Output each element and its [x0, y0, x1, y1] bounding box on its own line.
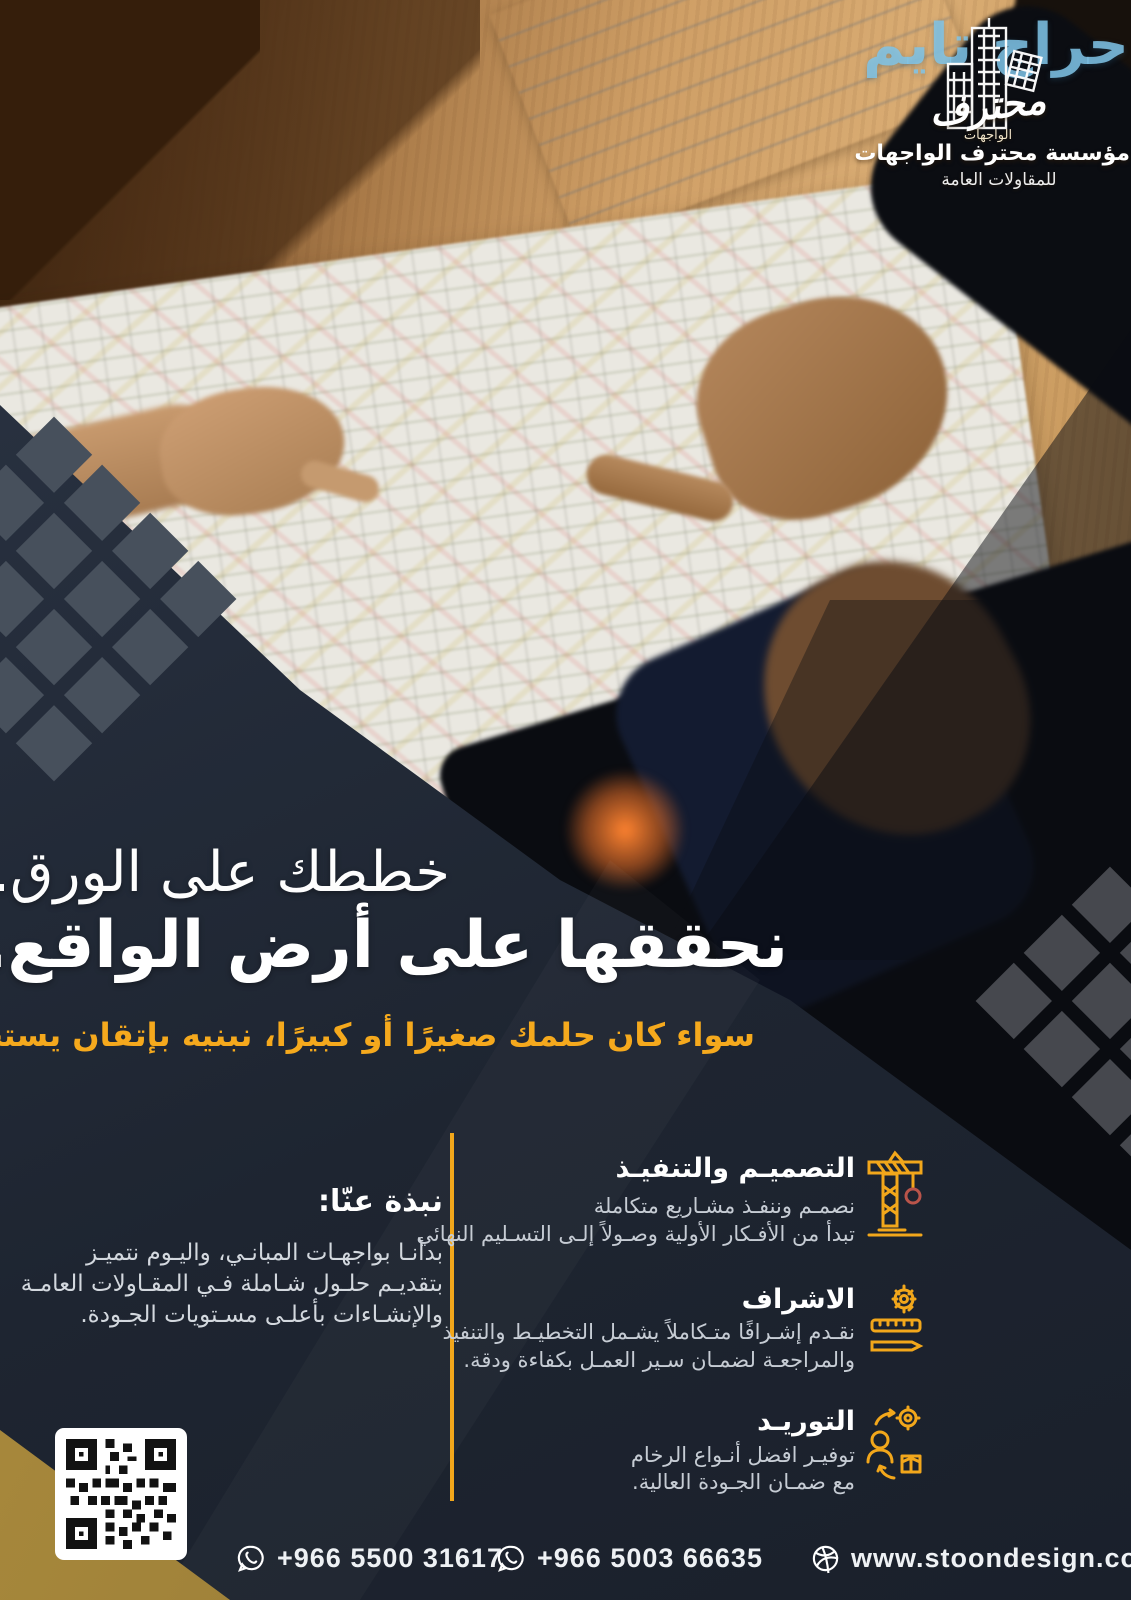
about-text: بدأنـا بواجهـات المبانـي، واليـوم نتميـز [86, 1240, 443, 1266]
service-desc: توفيـر افضل أنـواع الرخام [631, 1443, 855, 1467]
service-desc: مع ضمـان الجـودة العالية. [632, 1470, 855, 1494]
whatsapp-icon [236, 1543, 267, 1574]
service-desc: والمراجعـة لضمـان سـير العمـل بكفاءة ودق… [463, 1348, 855, 1372]
headline-subtitle: سواء كان حلمك صغيرًا أو كبيرًا، نبنيه بإ… [0, 1016, 755, 1054]
phone-item-1[interactable]: +966 5500 31617 [236, 1543, 503, 1574]
phone-number: +966 5003 66635 [537, 1543, 763, 1574]
phone-item-2[interactable]: +966 5003 66635 [496, 1543, 763, 1574]
headline-line2: نحققها على أرض الواقع. [0, 908, 788, 983]
website-url: www.stoondesign.com [851, 1543, 1131, 1574]
service-title: التصميـم والتنفيـذ [616, 1153, 855, 1184]
service-desc: نصمـم وننفـذ مشـاريع متكاملة [594, 1194, 855, 1218]
company-tagline: للمقاولات العامة [868, 170, 1130, 190]
about-text: والإنشـاءات بأعلـى مسـتويات الجـودة. [80, 1302, 443, 1328]
about-text: بتقديـم حلـول شـاملة فـي المقـاولات العا… [21, 1271, 443, 1297]
company-name: مؤسسة محترف الواجهات [868, 141, 1130, 166]
website-item[interactable]: www.stoondesign.com [810, 1543, 1131, 1574]
phone-number: +966 5500 31617 [277, 1543, 503, 1574]
headline-line1: خططك على الورق... [0, 840, 450, 905]
about-title: نبذة عنّا: [318, 1184, 443, 1219]
poster: حراج تايم محترف الواجهات مؤسسة محترف الو… [0, 0, 1131, 1600]
dribbble-globe-icon [810, 1543, 841, 1574]
service-desc: تبدأ من الأفـكار الأولية وصـولاً إلـى ال… [416, 1222, 855, 1246]
qr-code [55, 1428, 187, 1560]
qr-pattern [66, 1439, 176, 1549]
supply-icon [864, 1404, 926, 1486]
service-title: الاشراف [742, 1284, 855, 1315]
contact-bar: +966 5500 31617 +966 5003 66635 www.stoo… [0, 1543, 1131, 1587]
whatsapp-icon [496, 1543, 527, 1574]
service-title: التوريـد [757, 1406, 855, 1437]
supervision-icon [866, 1284, 926, 1364]
yellow-divider [450, 1133, 454, 1501]
crane-icon [863, 1146, 927, 1240]
service-desc: نقـدم إشـرافًا متـكاملاً يشـمل التخطيـط … [442, 1320, 855, 1344]
